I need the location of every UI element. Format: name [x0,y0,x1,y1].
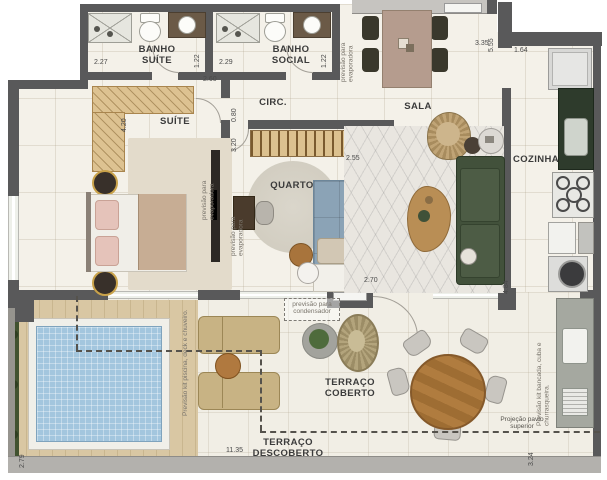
dining-chair [362,16,379,40]
shower-head-icon [222,26,228,32]
projection-line [76,350,262,352]
wall [332,4,340,80]
sink [178,16,196,34]
sun-lounger [198,372,280,410]
floor-mask [0,0,80,80]
suite-window [8,196,19,280]
sofa-cushion [460,168,500,222]
dining-chair [431,48,448,72]
projection-line [260,431,600,433]
burner-icon [566,187,582,203]
dim-sala-width: 3.35 [475,40,489,47]
wall [312,72,340,80]
dim-circ-width: 2.60 [203,76,217,83]
terrace-table [410,354,486,430]
room-label-banho-social: BANHO SOCIAL [262,45,320,67]
side-table [297,262,319,284]
dim-cozinha-height: 4.84 [503,268,510,294]
washer-door [558,260,586,288]
dim-suite-door: 0.80 [231,98,238,122]
cabinet [548,222,576,254]
hanging-chair-seat [348,330,365,352]
floor-mask [497,0,607,32]
dim-terraco-width: 11.35 [226,447,243,454]
bedside-table [92,170,118,196]
room-label-terraco-coberto: TERRAÇO COBERTO [314,378,386,400]
wall [80,4,88,80]
cabinet [578,222,594,254]
projection-line [76,296,78,350]
floor-plan: previsão para condensador BANHO SUÍTE BA… [0,0,607,480]
note-evaporadora-quarto: previsão para evaporadora [230,200,245,256]
note-kit-piscina: Previsão kit piscina, deck e chuveiro. [182,298,189,416]
room-label-cozinha: COZINHA [510,155,562,166]
condenser-note: previsão para condensador [287,301,337,316]
table-decor [406,44,414,52]
note-evaporadora-suite: previsão para evaporadora [201,156,216,220]
dim-banho-social-depth: 1.22 [321,44,328,68]
sink [303,16,321,34]
wall [487,0,497,14]
pillow [95,200,119,230]
condenser-box: previsão para condensador [284,298,340,321]
dim-terraco-height: 3.24 [528,440,535,466]
dim-cozinha-width: 1.64 [514,47,528,54]
dim-suite-height: 4.20 [121,106,128,132]
entry-door [444,3,482,13]
headboard [86,192,91,272]
closet [92,86,194,114]
room-label-banho-suite: BANHO SUÍTE [128,45,186,67]
table-decor [425,196,433,204]
dim-deck-depth: 2.79 [19,442,26,468]
wall [198,290,240,300]
kitchen-sink [564,118,588,156]
room-label-terraco-descoberto: TERRAÇO DESCOBERTO [240,438,336,460]
table-decor [418,210,430,222]
room-label-circ: CIRC. [248,98,298,109]
dim-banho-suite-depth: 1.22 [194,44,201,68]
dining-chair [362,48,379,72]
table-decor [485,136,494,143]
wall [80,72,152,80]
dim-sala-height: 5.55 [488,26,495,52]
toilet [264,21,286,42]
grill [562,388,588,416]
bedside-table [92,270,118,296]
floor-lamp [460,248,477,265]
wall [205,72,286,80]
pool [36,326,162,442]
shower-head-icon [94,26,100,32]
fridge-top [552,52,588,86]
projection-line [260,350,262,431]
dim-banho-social-width: 2.29 [219,59,233,66]
note-projecao: Projeção pavto superior [497,416,547,431]
sun-lounger [198,316,280,354]
dim-quarto-width-top: 2.55 [346,155,360,162]
wall [510,32,602,46]
room-label-quarto: QUARTO [264,181,320,192]
armchair-seat [436,122,460,146]
lounger-fold [222,316,223,352]
dining-chair [431,16,448,40]
pillow [95,236,119,266]
dim-quarto-width-bottom: 2.70 [364,277,378,284]
dim-quarto-height: 3.20 [231,126,238,152]
wall [8,80,88,89]
wall [593,40,601,458]
desk-chair [255,201,274,225]
terrace-edge [8,308,15,458]
terrace-sink [562,328,588,364]
plant [309,329,329,349]
side-table [215,353,241,379]
dim-banho-suite-width: 2.27 [94,59,108,66]
room-label-sala: SALA [395,102,441,113]
shower-head-icon [107,31,113,37]
note-kit-bancada: Previsão kit bancada, cuba e churrasquei… [536,330,551,426]
shower-head-icon [235,31,241,37]
room-label-suite: SUÍTE [150,117,200,128]
blanket [138,194,186,270]
note-evaporadora-sala: previsão para evaporadora [340,14,355,82]
bookshelf [250,130,358,157]
wall [205,4,213,80]
toilet [139,21,161,42]
wall [221,80,230,98]
